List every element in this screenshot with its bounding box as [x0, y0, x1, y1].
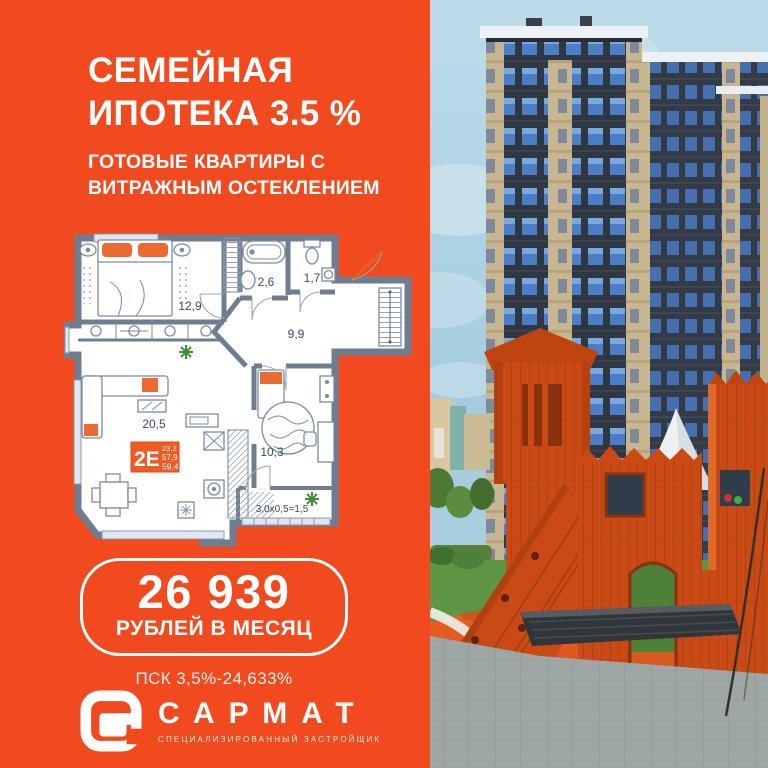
unit-code: 2Е [134, 448, 160, 471]
room-label-bedroom2: 10,3 [260, 445, 284, 459]
photo-panel [430, 0, 768, 768]
room-label-kitchen-living: 20,5 [142, 417, 166, 431]
unit-info-box: 2Е 23,2 57,9 59,4 [131, 442, 179, 472]
monthly-payment: 26 939 [91, 567, 337, 616]
entry-door [352, 252, 382, 280]
offer-block: 26 939 РУБЛЕЙ В МЕСЯЦ ПСК 3,5%-24,633% [80, 558, 348, 689]
subheadline: ГОТОВЫЕ КВАРТИРЫ С ВИТРАЖНЫМ ОСТЕКЛЕНИЕМ [88, 150, 380, 201]
room-label-balcony: 3,0x0,5=1,5 [256, 504, 309, 515]
payment-caption: РУБЛЕЙ В МЕСЯЦ [91, 617, 337, 641]
brand-block: САРМАТ СПЕЦИАЛИЗИРОВАННЫЙ ЗАСТРОЙЩИК [80, 690, 381, 752]
floorplan: 12,9 2,6 1,7 9,9 20,5 10,3 3,0x0,5=1,5 2… [64, 230, 416, 553]
headline: СЕМЕЙНАЯ ИПОТЕКА 3.5 % [88, 50, 361, 135]
room-label-hall: 9,9 [288, 327, 305, 341]
psk-note: ПСК 3,5%-24,633% [80, 669, 348, 689]
headline-line-1: СЕМЕЙНАЯ [88, 50, 361, 93]
room-label-bedroom: 12,9 [178, 299, 202, 313]
room-label-wc: 1,7 [304, 271, 321, 285]
subheadline-line-1: ГОТОВЫЕ КВАРТИРЫ С [88, 150, 380, 176]
ad-canvas: СЕМЕЙНАЯ ИПОТЕКА 3.5 % ГОТОВЫЕ КВАРТИРЫ … [0, 0, 768, 768]
unit-area-living: 23,2 [162, 444, 177, 453]
brand-name: САРМАТ [158, 699, 381, 729]
headline-line-2: ИПОТЕКА 3.5 % [88, 93, 361, 136]
unit-area-total: 59,4 [162, 462, 179, 472]
floorplan-drawing: 12,9 2,6 1,7 9,9 20,5 10,3 3,0x0,5=1,5 2… [64, 230, 416, 548]
brand-logo-icon [80, 690, 142, 752]
brand-tagline: СПЕЦИАЛИЗИРОВАННЫЙ ЗАСТРОЙЩИК [158, 735, 381, 744]
subheadline-line-2: ВИТРАЖНЫМ ОСТЕКЛЕНИЕМ [88, 176, 380, 202]
price-pill: 26 939 РУБЛЕЙ В МЕСЯЦ [80, 558, 348, 656]
brand-text: САРМАТ СПЕЦИАЛИЗИРОВАННЫЙ ЗАСТРОЙЩИК [158, 699, 381, 744]
room-label-bathroom: 2,6 [258, 275, 275, 289]
